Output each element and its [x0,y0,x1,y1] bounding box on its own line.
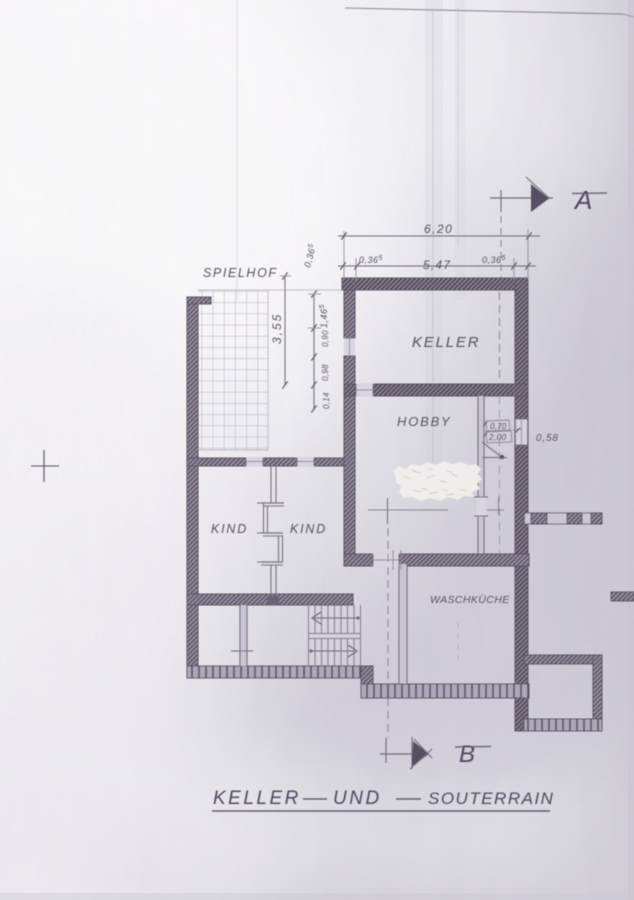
svg-text:WASCHKÜCHE: WASCHKÜCHE [430,594,510,606]
svg-text:A: A [573,185,592,215]
svg-text:0,98: 0,98 [321,364,330,381]
svg-text:0,70: 0,70 [490,422,507,431]
svg-text:6,20: 6,20 [424,222,453,236]
svg-text:SPIELHOF: SPIELHOF [203,266,278,280]
svg-text:0,90: 0,90 [321,330,330,347]
svg-text:KIND: KIND [211,522,248,536]
svg-text:KELLER: KELLER [412,334,480,351]
svg-text:UND: UND [333,788,382,809]
svg-text:B: B [459,741,475,768]
svg-text:2,00: 2,00 [488,432,506,442]
svg-text:5,47: 5,47 [423,258,451,272]
svg-text:0,58: 0,58 [536,433,559,444]
svg-text:0,14: 0,14 [322,392,331,409]
svg-text:KELLER: KELLER [213,788,301,809]
svg-text:3,55: 3,55 [270,313,284,344]
svg-text:SOUTERRAIN: SOUTERRAIN [428,789,554,808]
svg-text:KIND: KIND [290,522,327,536]
svg-text:HOBBY: HOBBY [397,414,452,429]
